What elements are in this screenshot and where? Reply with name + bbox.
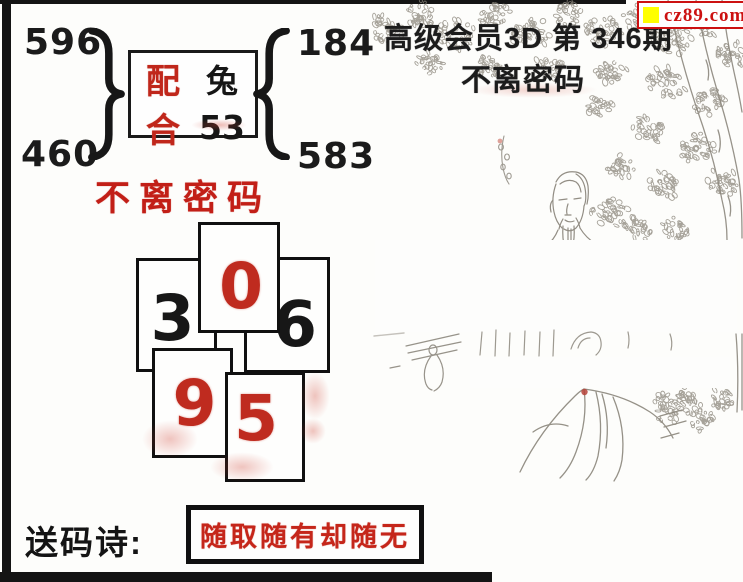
card-digit: 5 bbox=[234, 387, 278, 450]
closing-brace bbox=[86, 28, 126, 160]
pairing-label-top: 配 bbox=[146, 54, 180, 103]
red-seal-dot bbox=[581, 389, 587, 395]
pairing-label-bottom: 合 bbox=[146, 103, 180, 152]
badge-yellow-square-icon bbox=[643, 7, 659, 23]
leaf-sprig bbox=[498, 136, 512, 184]
stems-and-hat bbox=[480, 330, 672, 356]
zodiac-character: 兔 bbox=[206, 56, 238, 102]
card-digit: 3 bbox=[151, 287, 195, 350]
number-right-bottom: 583 bbox=[297, 139, 375, 175]
censor-rect-lower bbox=[470, 357, 730, 388]
opening-brace bbox=[252, 28, 292, 160]
page-subtitle: 不离密码 bbox=[461, 55, 585, 99]
password-title: 不离密码 bbox=[95, 170, 295, 221]
left-border bbox=[2, 0, 11, 578]
poem-label: 送码诗: bbox=[25, 516, 143, 564]
pairing-box: 配 兔 合 53 bbox=[128, 50, 258, 138]
number-right-top: 184 bbox=[297, 26, 375, 62]
censor-rect-upper bbox=[375, 240, 737, 332]
site-badge-link[interactable]: cz89.com bbox=[637, 1, 743, 29]
number-card: 0 bbox=[198, 222, 280, 333]
card-digit: 0 bbox=[219, 255, 263, 318]
card-digit: 9 bbox=[173, 372, 217, 435]
ribbon-bundle bbox=[390, 334, 461, 391]
red-smudge bbox=[191, 119, 247, 131]
badge-site-name: cz89.com bbox=[664, 6, 743, 25]
lottery-chart-page: 高级会员3D 第 346期 不离密码 cz89.com 596 460 配 兔 … bbox=[0, 0, 743, 582]
number-card: 5 bbox=[225, 372, 305, 482]
page-title: 高级会员3D 第 346期 bbox=[384, 15, 673, 57]
number-card: 9 bbox=[152, 348, 233, 458]
stray-dash bbox=[374, 333, 404, 336]
